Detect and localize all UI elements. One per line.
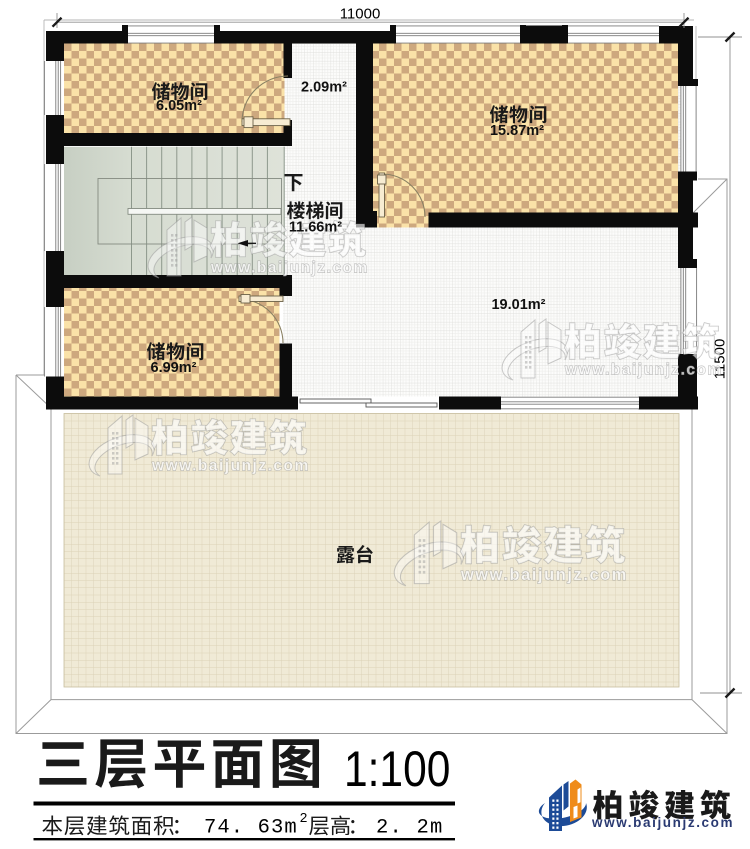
svg-text:19.01m²: 19.01m² (491, 297, 545, 313)
svg-text:11000: 11000 (340, 6, 381, 23)
svg-text:2: 2 (300, 812, 308, 827)
svg-text:6.05m²: 6.05m² (156, 98, 202, 114)
svg-text:2. 2m: 2. 2m (376, 817, 444, 840)
svg-text:15.87m²: 15.87m² (490, 123, 544, 139)
svg-text:6.99m²: 6.99m² (151, 360, 197, 376)
svg-text:www.baijunjz.com: www.baijunjz.com (591, 815, 734, 830)
svg-text:1:100: 1:100 (344, 741, 450, 797)
svg-text:2.09m²: 2.09m² (301, 80, 347, 96)
svg-text:74. 63m: 74. 63m (204, 817, 298, 840)
svg-text:11.66m²: 11.66m² (289, 220, 342, 236)
